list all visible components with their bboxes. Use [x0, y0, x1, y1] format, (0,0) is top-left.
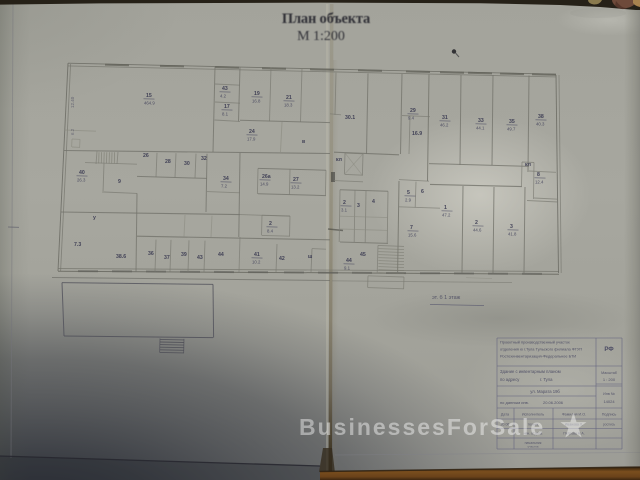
- svg-text:участка: участка: [528, 445, 539, 449]
- svg-text:44.1: 44.1: [476, 126, 485, 131]
- svg-text:29: 29: [410, 108, 416, 114]
- svg-text:20.06.2006: 20.06.2006: [543, 400, 564, 405]
- svg-text:2: 2: [269, 221, 272, 227]
- svg-text:эт. б 1 этаж: эт. б 1 этаж: [432, 295, 461, 301]
- svg-text:17: 17: [224, 104, 230, 110]
- svg-text:12.4: 12.4: [535, 180, 544, 185]
- svg-text:5: 5: [407, 190, 410, 196]
- svg-text:3: 3: [357, 203, 360, 209]
- svg-text:18.3: 18.3: [284, 103, 293, 108]
- svg-text:27: 27: [293, 177, 299, 183]
- svg-text:3: 3: [510, 224, 513, 230]
- svg-text:41: 41: [254, 252, 260, 258]
- svg-text:8.1: 8.1: [222, 112, 229, 117]
- svg-text:38: 38: [538, 114, 544, 120]
- svg-text:6: 6: [421, 189, 424, 195]
- svg-text:13.2: 13.2: [291, 185, 300, 190]
- svg-text:35: 35: [509, 119, 515, 125]
- svg-text:45: 45: [360, 252, 366, 258]
- svg-text:7: 7: [410, 225, 413, 231]
- svg-text:37: 37: [164, 255, 170, 261]
- svg-text:4: 4: [372, 199, 375, 205]
- svg-text:44: 44: [218, 252, 224, 258]
- svg-text:Масштаб: Масштаб: [601, 371, 617, 375]
- svg-text:роспись: роспись: [603, 423, 616, 427]
- svg-text:15: 15: [146, 93, 152, 99]
- svg-text:отделения ю г.Тула Тульского ф: отделения ю г.Тула Тульского филиала ФГУ…: [500, 347, 582, 352]
- svg-text:40.3: 40.3: [536, 122, 545, 127]
- svg-text:Инв №: Инв №: [603, 392, 615, 396]
- svg-text:19: 19: [254, 91, 260, 97]
- svg-text:2.9: 2.9: [405, 198, 412, 203]
- svg-text:31: 31: [442, 115, 448, 121]
- svg-text:26: 26: [143, 153, 149, 159]
- svg-text:BusinessesForSale: BusinessesForSale: [299, 414, 545, 440]
- svg-text:по данным инв.: по данным инв.: [500, 400, 529, 405]
- svg-text:кл: кл: [525, 162, 531, 168]
- svg-text:46.2: 46.2: [440, 123, 449, 128]
- svg-text:26.3: 26.3: [77, 178, 86, 183]
- svg-text:1: 1: [444, 205, 447, 211]
- svg-text:9.1: 9.1: [344, 266, 351, 271]
- svg-text:8: 8: [537, 172, 540, 178]
- svg-text:г. Тула: г. Тула: [540, 377, 553, 382]
- svg-text:Здание с инвентарным планом: Здание с инвентарным планом: [500, 369, 561, 374]
- svg-text:М 1:200: М 1:200: [297, 29, 345, 44]
- svg-text:43: 43: [222, 86, 228, 92]
- svg-text:32: 32: [201, 156, 207, 162]
- svg-text:по адресу: по адресу: [500, 377, 520, 382]
- svg-text:24: 24: [249, 129, 255, 135]
- svg-text:41.8: 41.8: [508, 232, 517, 237]
- svg-text:36: 36: [148, 251, 154, 257]
- svg-text:16.8: 16.8: [252, 99, 261, 104]
- svg-text:33: 33: [478, 118, 484, 124]
- svg-text:1 : 200: 1 : 200: [603, 377, 616, 382]
- svg-text:4.2: 4.2: [220, 94, 227, 99]
- svg-text:3.1: 3.1: [341, 208, 348, 213]
- svg-text:44.6: 44.6: [473, 228, 482, 233]
- svg-text:30: 30: [184, 161, 190, 167]
- svg-text:9.4: 9.4: [408, 116, 415, 121]
- svg-text:у: у: [93, 215, 96, 221]
- svg-text:26а: 26а: [262, 174, 271, 180]
- svg-text:6.2: 6.2: [70, 128, 75, 135]
- svg-text:кл: кл: [336, 157, 342, 163]
- svg-text:17.9: 17.9: [247, 137, 256, 142]
- svg-text:14024: 14024: [603, 399, 615, 404]
- svg-text:21: 21: [286, 95, 292, 101]
- svg-text:47.2: 47.2: [442, 213, 451, 218]
- svg-text:14.9: 14.9: [260, 182, 269, 187]
- svg-text:464.9: 464.9: [144, 101, 155, 106]
- svg-text:2: 2: [343, 200, 346, 206]
- svg-text:30.1: 30.1: [345, 115, 355, 121]
- svg-text:7.2: 7.2: [221, 184, 228, 189]
- svg-text:10.2: 10.2: [252, 260, 261, 265]
- svg-text:План объекта: План объекта: [282, 11, 371, 27]
- svg-text:Подпись: Подпись: [602, 413, 617, 417]
- svg-text:★: ★: [560, 410, 587, 443]
- svg-text:40: 40: [79, 170, 85, 176]
- svg-text:15.6: 15.6: [408, 233, 417, 238]
- svg-text:7.3: 7.3: [74, 242, 81, 248]
- svg-text:38.6: 38.6: [116, 254, 126, 260]
- svg-text:49.7: 49.7: [507, 127, 516, 132]
- svg-text:44: 44: [346, 258, 352, 264]
- svg-text:28: 28: [165, 159, 171, 165]
- svg-text:34: 34: [223, 176, 229, 182]
- svg-text:ш: ш: [308, 254, 312, 260]
- svg-text:8.4: 8.4: [267, 229, 274, 234]
- svg-text:Ростехинвентаризация-Федеральн: Ростехинвентаризация-Федеральное БТИ: [500, 354, 576, 359]
- svg-text:12.40: 12.40: [70, 96, 75, 108]
- svg-text:в: в: [302, 139, 305, 145]
- svg-text:Проектный производственный уча: Проектный производственный участок: [500, 340, 570, 345]
- svg-text:9: 9: [118, 179, 121, 185]
- svg-text:2: 2: [475, 220, 478, 226]
- svg-text:РФ: РФ: [604, 346, 614, 353]
- svg-text:ул. Марата 19б: ул. Марата 19б: [530, 389, 560, 394]
- svg-text:42: 42: [279, 256, 285, 262]
- svg-text:43: 43: [197, 255, 203, 261]
- svg-text:16.9: 16.9: [412, 131, 422, 137]
- svg-text:39: 39: [181, 252, 187, 258]
